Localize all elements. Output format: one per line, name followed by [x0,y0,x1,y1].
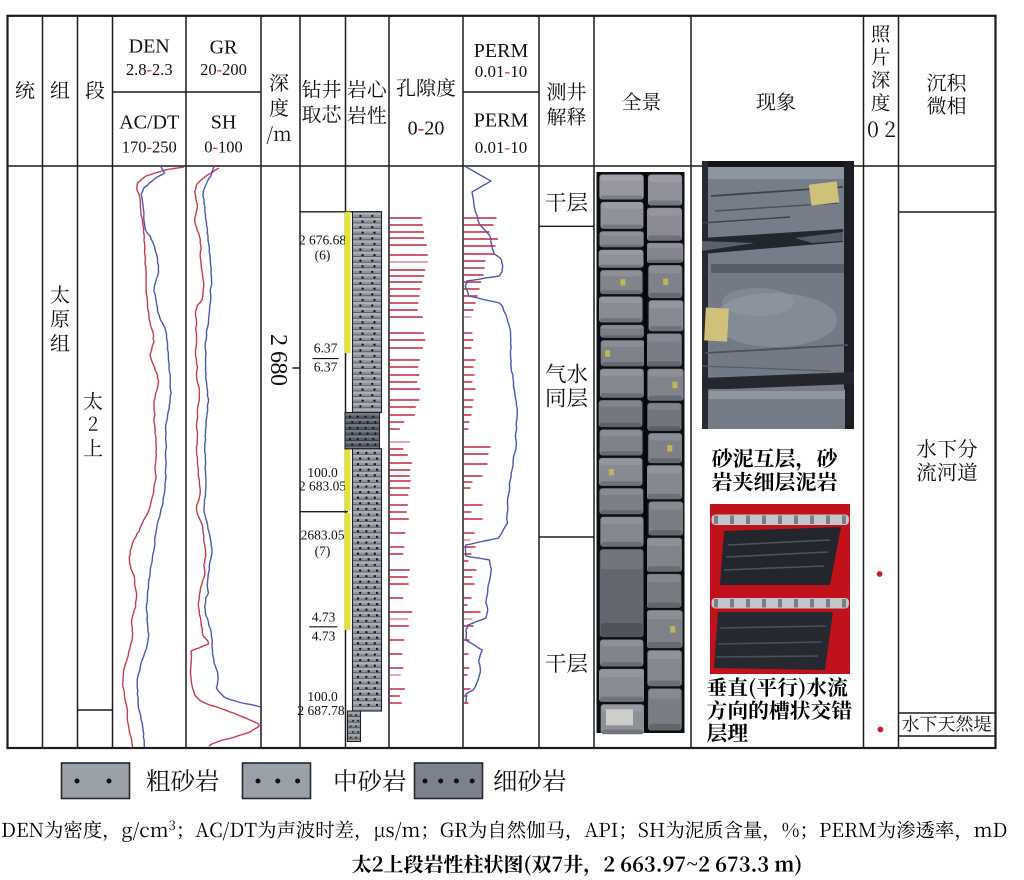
svg-text:2 687.78: 2 687.78 [297,703,345,718]
svg-text:6.37: 6.37 [314,341,338,356]
svg-text:DEN: DEN [129,36,170,58]
svg-text:2.8-2.3: 2.8-2.3 [126,60,173,79]
svg-text:2 683.05: 2 683.05 [299,479,347,494]
svg-text:GR: GR [210,37,238,59]
svg-text:PERM: PERM [474,40,529,62]
svg-text:SH: SH [211,112,237,134]
svg-text:2 676.68: 2 676.68 [299,233,347,248]
svg-text:2 680: 2 680 [265,334,291,386]
svg-text:4.73: 4.73 [312,629,336,644]
svg-text:0-100: 0-100 [204,138,243,157]
svg-text:0-20: 0-20 [408,118,445,140]
svg-text:170-250: 170-250 [122,138,177,157]
svg-text:(6): (6) [315,248,331,263]
svg-text:4.73: 4.73 [312,610,336,625]
svg-text:2683.05: 2683.05 [301,528,345,543]
svg-text:6.37: 6.37 [314,360,338,375]
svg-text:0.01-10: 0.01-10 [475,138,527,157]
svg-text:AC/DT: AC/DT [119,112,179,134]
svg-text:PERM: PERM [474,110,529,132]
svg-text:0.01-10: 0.01-10 [475,62,527,81]
svg-text:(7): (7) [315,544,331,559]
svg-text:100.0: 100.0 [307,689,338,704]
svg-text:20-200: 20-200 [200,60,247,79]
